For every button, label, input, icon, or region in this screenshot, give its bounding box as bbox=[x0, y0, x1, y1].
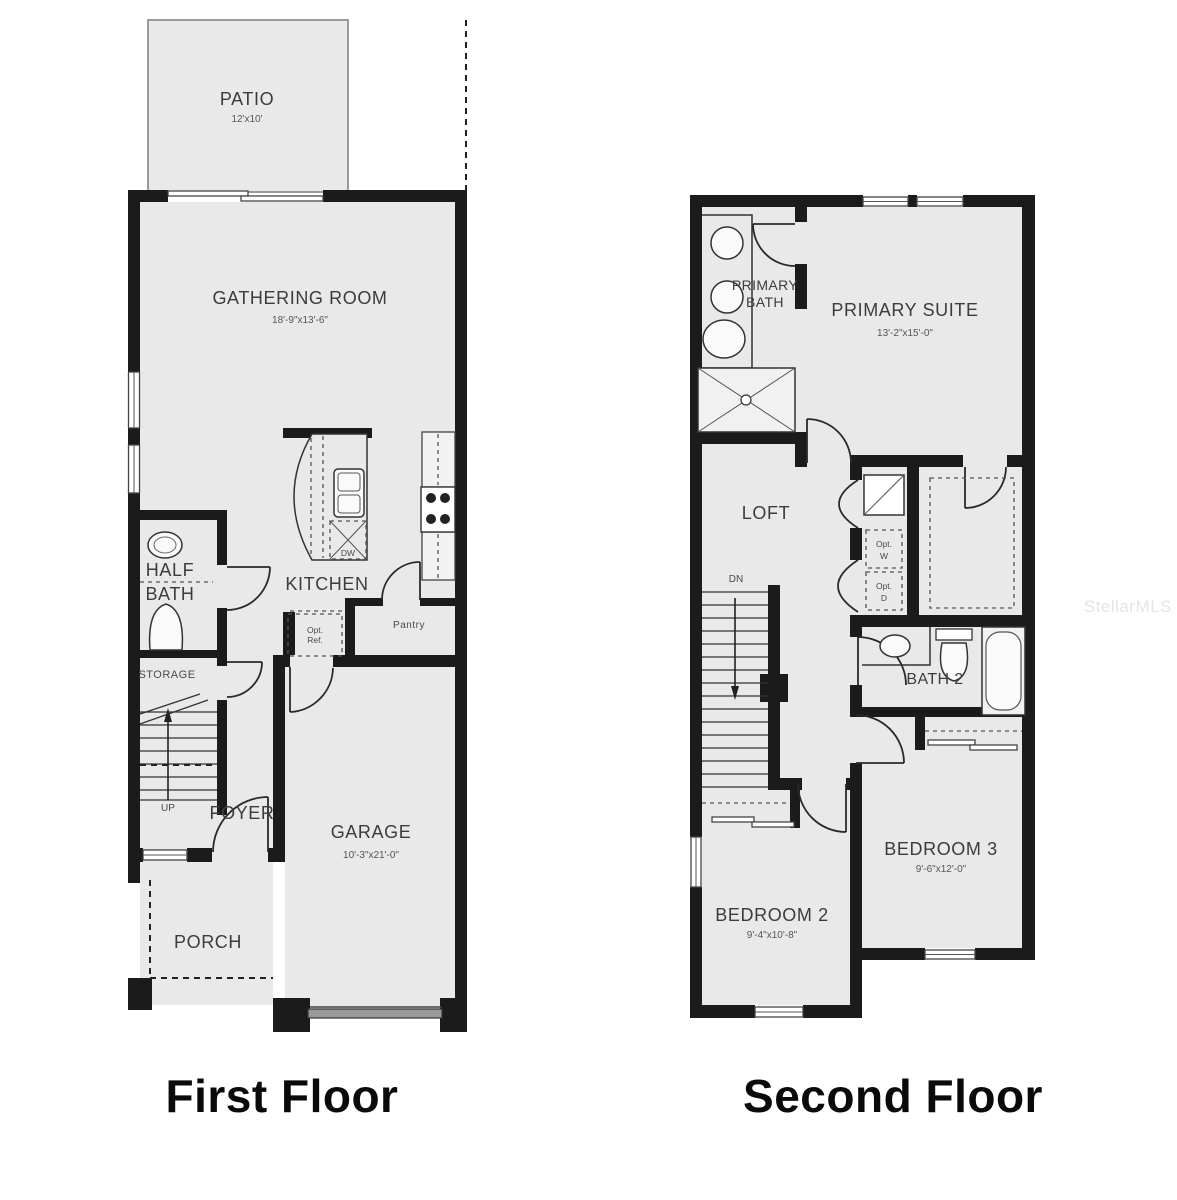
dn-label: DN bbox=[729, 574, 743, 585]
opt-w-label-1: Opt. bbox=[876, 539, 892, 549]
half-bath-label-2: BATH bbox=[145, 584, 194, 604]
foyer-label: FOYER bbox=[209, 803, 274, 823]
primary-shower bbox=[698, 368, 795, 432]
opt-w-label-2: W bbox=[880, 551, 888, 561]
garage-label: GARAGE bbox=[331, 822, 412, 842]
bedroom2-extension-area bbox=[702, 948, 852, 1005]
kitchen-label: KITCHEN bbox=[285, 574, 368, 594]
garage-door bbox=[308, 1007, 442, 1018]
watermark: StellarMLS bbox=[1084, 597, 1172, 616]
half-bath-label-1: HALF bbox=[146, 560, 194, 580]
dishwasher-label: DW bbox=[341, 548, 355, 558]
floor-plan-image: DW Opt. Ref. bbox=[0, 0, 1177, 1200]
porch-area bbox=[140, 848, 273, 1005]
primary-toilet bbox=[703, 320, 745, 358]
gathering-room-label: GATHERING ROOM bbox=[212, 288, 387, 308]
first-floor-title: First Floor bbox=[166, 1070, 399, 1122]
bedroom3-dims: 9'-6"x12'-0" bbox=[916, 864, 967, 875]
second-floor-plan: Opt. W Opt. D bbox=[690, 195, 1035, 1018]
bedroom2-label: BEDROOM 2 bbox=[715, 905, 828, 925]
primary-bath-label-1: PRIMARY bbox=[732, 277, 799, 293]
porch-label: PORCH bbox=[174, 932, 242, 952]
bedroom2-dims: 9'-4"x10'-8" bbox=[747, 930, 798, 941]
garage-dims: 10'-3"x21'-0" bbox=[343, 850, 399, 861]
gathering-room-dims: 18'-9"x13'-6" bbox=[272, 315, 328, 326]
bath2-tub bbox=[982, 627, 1025, 715]
pantry-label: Pantry bbox=[393, 620, 425, 631]
patio-slider-panel-1 bbox=[168, 191, 248, 196]
loft-label: LOFT bbox=[742, 503, 790, 523]
bedroom3-label: BEDROOM 3 bbox=[884, 839, 997, 859]
half-bath-sink bbox=[148, 532, 182, 558]
range-cooktop bbox=[421, 487, 455, 532]
kitchen-sink bbox=[334, 469, 364, 517]
floor-plan-svg: DW Opt. Ref. bbox=[0, 0, 1177, 1200]
primary-sink-1 bbox=[711, 227, 743, 259]
primary-suite-dims: 13'-2"x15'-0" bbox=[877, 328, 933, 339]
first-floor-plan: DW Opt. Ref. bbox=[128, 20, 467, 1032]
patio-label: PATIO bbox=[220, 89, 274, 109]
opt-ref-label-2: Ref. bbox=[307, 635, 323, 645]
bath2-label: BATH 2 bbox=[906, 671, 963, 688]
primary-bath-label-2: BATH bbox=[746, 294, 784, 310]
opt-d-label-1: Opt. bbox=[876, 581, 892, 591]
storage-label: STORAGE bbox=[138, 669, 195, 681]
primary-suite-label: PRIMARY SUITE bbox=[831, 300, 978, 320]
opt-d-label-2: D bbox=[881, 593, 887, 603]
bath2-sink bbox=[880, 635, 910, 657]
up-label: UP bbox=[161, 803, 175, 814]
opt-ref-label-1: Opt. bbox=[307, 625, 323, 635]
patio-dims: 12'x10' bbox=[231, 114, 262, 125]
second-floor-title: Second Floor bbox=[743, 1070, 1043, 1122]
patio-slider-panel-2 bbox=[241, 196, 323, 201]
